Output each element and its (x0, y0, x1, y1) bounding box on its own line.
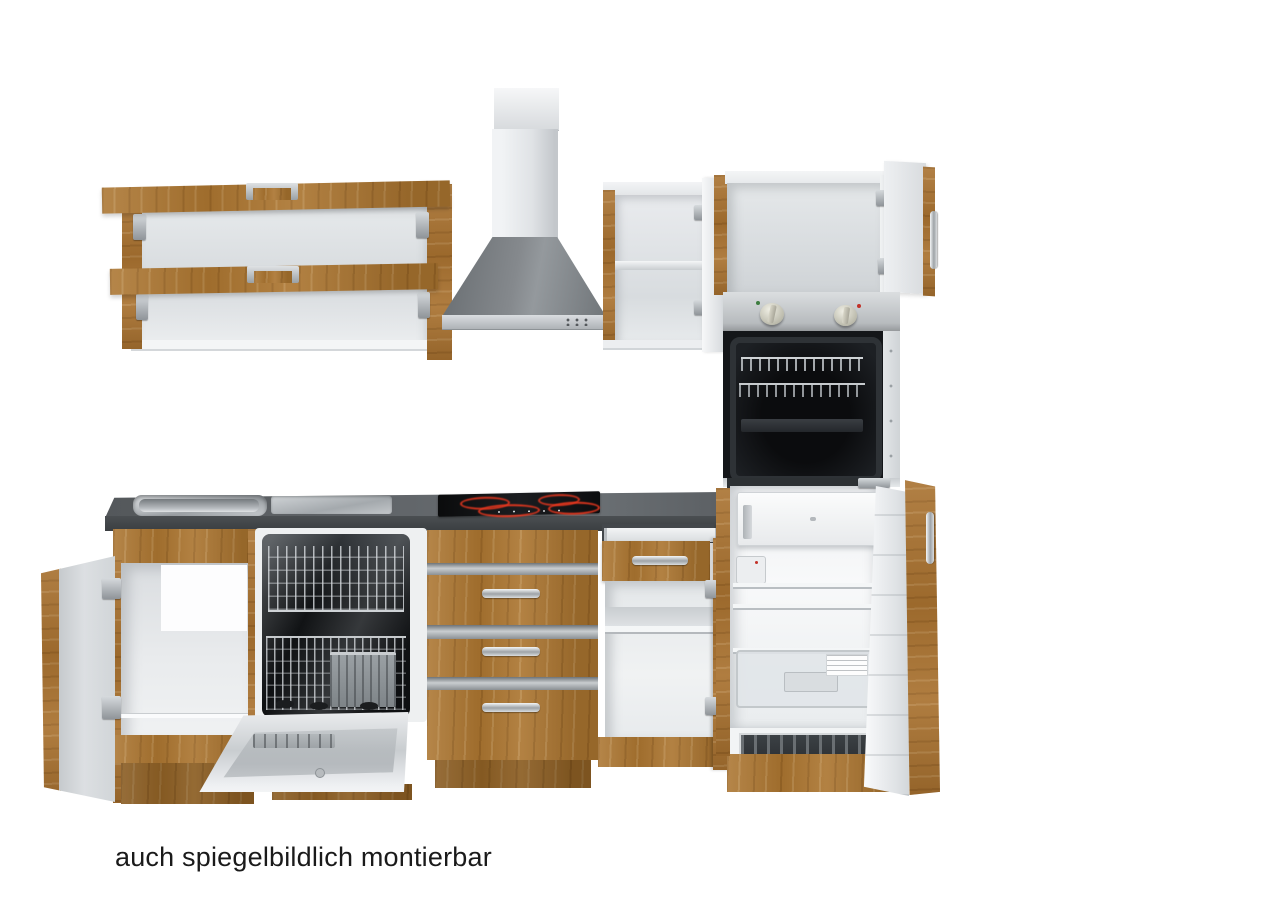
fridge-door-handle (926, 512, 934, 564)
oven-knob-right (834, 305, 857, 326)
door-outer-edge (41, 556, 61, 802)
flap-hinge (136, 294, 148, 320)
dishwasher-door-control-strip (253, 734, 335, 748)
hood-control-band (442, 315, 607, 330)
knob-stem (842, 307, 850, 325)
flap-door-middle-handle (247, 266, 299, 283)
fridge-door-hinge-top (858, 478, 890, 488)
drawer-unit-plinth (435, 760, 591, 788)
oven-power-light-green (756, 301, 760, 305)
drawer-4-front (427, 690, 598, 760)
freezer-handle-slot (743, 505, 752, 539)
sink-drainer (271, 496, 392, 514)
thermostat-light (755, 561, 758, 564)
drawer-3-front (427, 639, 598, 677)
hood-canopy (441, 237, 607, 317)
small-cabinet-interior (605, 581, 713, 737)
flap-hinge (416, 212, 429, 238)
drawer-2-front (427, 575, 598, 625)
flap-hinge (133, 214, 146, 240)
drawer-gap-2 (427, 625, 598, 639)
dishwasher-door-open (195, 712, 415, 798)
dishwasher-wheel (276, 700, 294, 708)
hood-chimney-top (494, 88, 559, 131)
knob-stem (767, 305, 777, 324)
fridge-crisper-drawer (736, 650, 880, 708)
flap-hinge (418, 292, 430, 318)
oven-rack-lower (739, 383, 865, 397)
hood-buttons (564, 318, 594, 326)
oven-cavity (723, 331, 883, 480)
drawer-4-handle (482, 703, 540, 712)
small-cabinet-shelf-edge (605, 626, 713, 634)
small-cabinet-shelf (605, 607, 713, 628)
oven-knob-left (760, 303, 784, 325)
oven-heat-light-red (857, 304, 861, 308)
wall-cabinet-left-bottom-panel (131, 340, 429, 351)
dishwasher-upper-basket (268, 546, 404, 612)
fridge-unit-left-stile (716, 488, 730, 756)
drawer-2-handle (482, 589, 540, 598)
sink-cabinet-top-rail (113, 529, 260, 565)
wall-cabinet-middle-shelf (615, 261, 702, 270)
fridge-shelf (733, 604, 877, 610)
door-hinge (102, 696, 121, 719)
dishwasher-cutlery-basket (330, 652, 396, 707)
dishwasher-door-screw (315, 768, 325, 778)
fridge-door-wood-panel (905, 477, 940, 795)
drawer-gap-1 (427, 563, 598, 575)
drawer-3-handle (482, 647, 540, 656)
sink-cabinet-open-back (161, 565, 247, 631)
wall-cabinet-middle-side (603, 190, 615, 348)
freezer-compartment (737, 492, 879, 546)
tall-cabinet-top-interior (727, 183, 880, 292)
oven-rack-upper (741, 357, 863, 371)
cooktop (438, 491, 600, 517)
hood-chimney (492, 129, 558, 239)
freezer-latch-dot (810, 517, 816, 521)
small-cabinet-bottom-rail (598, 737, 732, 767)
kitchen-product-image: auch spiegelbildlich montierbar (0, 0, 1280, 905)
open-drawer-box (604, 528, 718, 542)
dishwasher-wheel (360, 702, 378, 710)
drawer-1-front (427, 530, 598, 563)
tall-cabinet-top-door-open (884, 161, 926, 294)
dishwasher-opening (262, 534, 410, 717)
fridge-interior (730, 486, 880, 730)
crisper-energy-label (826, 654, 868, 676)
caption-text: auch spiegelbildlich montierbar (115, 842, 492, 873)
sink-basin-inner (139, 499, 259, 512)
fridge-thermostat (736, 556, 766, 584)
oven-control-panel (723, 292, 900, 334)
dishwasher-wheel (310, 702, 328, 710)
tall-cabinet-left-stile (714, 175, 727, 295)
fridge-shelf (733, 583, 877, 589)
door-hinge (102, 578, 121, 599)
sink-basin (133, 495, 267, 516)
oven-baking-tray (741, 419, 863, 432)
handle-cutout (254, 271, 292, 283)
drawer-gap-3 (427, 677, 598, 690)
sink-cabinet-interior (121, 563, 248, 737)
wall-cabinet-middle-bottom (603, 340, 703, 350)
handle-cutout (253, 188, 291, 200)
flap-door-top-handle (246, 183, 298, 200)
tall-cabinet-top-door-handle (930, 211, 937, 269)
oven-side-panel (883, 331, 900, 480)
small-cabinet-drawer-handle (632, 556, 688, 565)
